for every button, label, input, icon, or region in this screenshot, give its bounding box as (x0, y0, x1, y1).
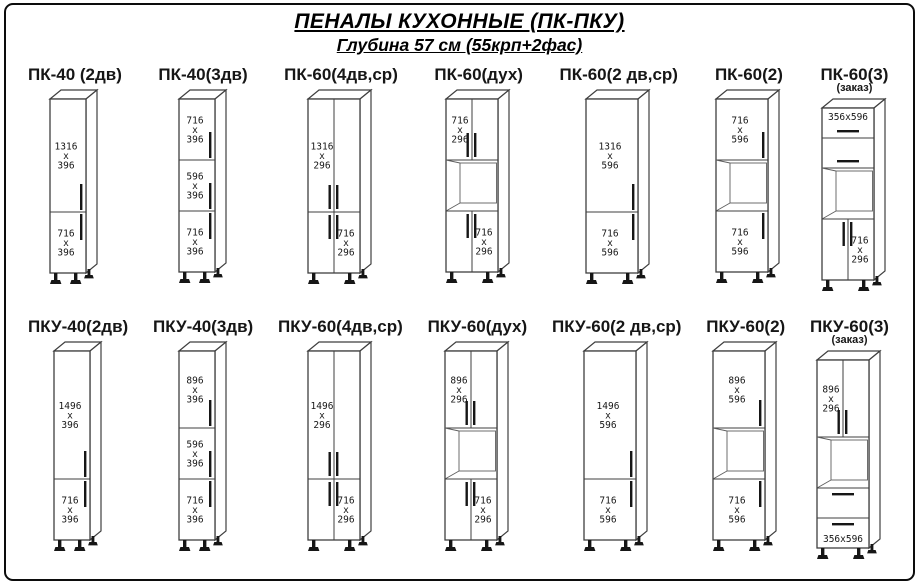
drawer-handle (832, 493, 854, 495)
cabinet-pku-60-4dv-sr: ПКУ-60(4дв,ср) 1496x296716x296 (278, 316, 403, 554)
door-handle (474, 133, 476, 157)
page-title: ПЕНАЛЫ КУХОННЫЕ (ПК-ПКУ) (6, 10, 913, 34)
door-handle (759, 481, 761, 507)
cabinet-art: 1496x396716x396 (52, 340, 105, 554)
cabinet-pku-40-2dv: ПКУ-40(2дв) 1496x396716x396 (28, 316, 128, 554)
cabinet-pku-60-3-zakaz: ПКУ-60(3) (заказ) 896x296356x596 (810, 316, 889, 562)
cabinet-drawing: 1316x396716x396 (48, 88, 101, 287)
door-handle (209, 213, 211, 239)
oven-niche (836, 171, 873, 211)
cabinet-drawing: 1496x396716x396 (52, 340, 105, 554)
cabinet-art: 896x296716x296 (443, 340, 512, 554)
cabinet-side-face (360, 90, 371, 273)
door-handle (336, 185, 338, 209)
door-handle (328, 452, 330, 476)
cabinet-title: ПКУ-40(3дв) (153, 316, 253, 337)
cabinet-side-face (765, 342, 776, 540)
cabinet-drawing: 1316x296716x296 (306, 88, 375, 287)
door-handle (209, 183, 211, 209)
cabinet-foot (199, 540, 210, 551)
cabinet-foot (74, 540, 85, 551)
row-pk-cabinets: ПК-40 (2дв) 1316x396716x396 ПК-40(3дв) 7… (6, 64, 913, 294)
door-handle (473, 401, 475, 425)
door-handle (84, 481, 86, 507)
cabinet-pk-60-duh: ПК-60(дух) 716x296716x296 (434, 64, 523, 286)
cabinet-foot (179, 540, 190, 551)
cabinet-pku-40-3dv: ПКУ-40(3дв) 896x396596x396716x396 (153, 316, 253, 554)
cabinet-foot (752, 272, 763, 283)
cabinet-title: ПКУ-40(2дв) (28, 316, 128, 337)
door-handle (84, 451, 86, 477)
cabinet-pku-60-duh: ПКУ-60(дух) 896x296716x296 (428, 316, 528, 554)
cabinet-foot (622, 273, 633, 284)
cabinet-side-face (874, 99, 885, 280)
door-handle (336, 452, 338, 476)
cabinet-drawing: 716x396596x396716x396 (177, 88, 230, 286)
row-pku-cabinets: ПКУ-40(2дв) 1496x396716x396 ПКУ-40(3дв) … (6, 316, 913, 562)
page-subtitle: Глубина 57 см (55крп+2фас) (6, 35, 913, 55)
drawer-handle (832, 523, 854, 525)
door-handle (630, 481, 632, 507)
cabinet-title: ПК-60(2) (715, 64, 783, 85)
door-handle (80, 214, 82, 240)
cabinet-foot (199, 272, 210, 283)
oven-niche (459, 431, 496, 471)
cabinet-foot (817, 548, 828, 559)
door-handle (80, 184, 82, 210)
cabinet-pk-60-4dv-sr: ПК-60(4дв,ср) 1316x296716x296 (284, 64, 398, 287)
cabinet-title: ПК-60(4дв,ср) (284, 64, 398, 85)
oven-niche (730, 163, 767, 203)
cabinet-drawing: 716x596716x596 (714, 88, 783, 286)
cabinet-side-face (768, 90, 779, 272)
door-handle (329, 185, 331, 209)
cabinet-foot (445, 540, 456, 551)
cabinet-side-face (90, 342, 101, 540)
cabinet-side-face (869, 351, 880, 548)
cabinet-foot (749, 540, 760, 551)
cabinet-title: ПК-40(3дв) (158, 64, 247, 85)
dimension-label: 356x596 (828, 112, 868, 123)
cabinet-drawing: 1496x596716x596 (582, 340, 651, 554)
door-handle (632, 184, 634, 210)
cabinet-art: 716x296716x296 (444, 88, 513, 286)
door-handle (632, 214, 634, 240)
cabinet-drawing: 716x296716x296 (444, 88, 513, 286)
cabinet-foot (858, 280, 869, 291)
cabinet-foot (70, 273, 81, 284)
cabinet-side-face (215, 342, 226, 540)
cabinet-foot (308, 273, 319, 284)
cabinet-side-face (497, 342, 508, 540)
cabinet-art: 1316x396716x396 (48, 88, 101, 287)
door-handle (209, 481, 211, 507)
cabinet-art: 716x396596x396716x396 (177, 88, 230, 286)
cabinet-foot (446, 272, 457, 283)
cabinet-side-face (498, 90, 509, 272)
cabinet-title: ПК-60(2 дв,ср) (559, 64, 677, 85)
cabinet-pk-40-2dv: ПК-40 (2дв) 1316x396716x396 (28, 64, 122, 287)
cabinet-title: ПКУ-60(2 дв,ср) (552, 316, 681, 337)
door-handle (329, 215, 331, 239)
cabinet-art: 896x596716x596 (711, 340, 780, 554)
door-handle (842, 222, 844, 246)
cabinet-drawing: 896x396596x396716x396 (177, 340, 230, 554)
oven-niche (727, 431, 764, 471)
cabinet-pku-60-2dv-sr: ПКУ-60(2 дв,ср) 1496x596716x596 (552, 316, 681, 554)
cabinet-foot (713, 540, 724, 551)
cabinet-title: ПКУ-60(2) (706, 316, 785, 337)
door-handle (467, 214, 469, 238)
cabinet-foot (481, 540, 492, 551)
cabinet-note: (заказ) (836, 83, 872, 94)
cabinet-foot (584, 540, 595, 551)
door-handle (845, 410, 847, 434)
cabinet-side-face (86, 90, 97, 273)
cabinet-side-face (215, 90, 226, 272)
cabinet-foot (344, 273, 355, 284)
cabinet-side-face (636, 342, 647, 540)
cabinet-foot (482, 272, 493, 283)
cabinet-foot (50, 273, 61, 284)
cabinet-art: 896x396596x396716x396 (177, 340, 230, 554)
door-handle (209, 132, 211, 158)
cabinet-art: 356x596716x296 (820, 97, 889, 294)
cabinet-art: 1316x296716x296 (306, 88, 375, 287)
cabinet-pku-60-2: ПКУ-60(2) 896x596716x596 (706, 316, 785, 554)
door-handle (209, 451, 211, 477)
cabinet-art: 716x596716x596 (714, 88, 783, 286)
cabinet-note: (заказ) (832, 335, 868, 346)
cabinet-drawing: 896x296716x296 (443, 340, 512, 554)
cabinet-drawing: 896x596716x596 (711, 340, 780, 554)
cabinet-foot (716, 272, 727, 283)
header: ПЕНАЛЫ КУХОННЫЕ (ПК-ПКУ) Глубина 57 см (… (6, 5, 913, 55)
door-handle (759, 400, 761, 426)
cabinet-pk-60-2dv-sr: ПК-60(2 дв,ср) 1316x596716x596 (559, 64, 677, 287)
cabinet-title: ПК-40 (2дв) (28, 64, 122, 85)
cabinet-foot (620, 540, 631, 551)
cabinet-foot (853, 548, 864, 559)
cabinet-drawing: 1316x596716x596 (584, 88, 653, 287)
oven-niche (831, 440, 868, 480)
cabinet-foot (822, 280, 833, 291)
drawer-handle (837, 130, 859, 132)
diagram-frame: ПЕНАЛЫ КУХОННЫЕ (ПК-ПКУ) Глубина 57 см (… (4, 3, 915, 581)
cabinet-pk-60-2: ПК-60(2) 716x596716x596 (714, 64, 783, 286)
cabinet-pk-40-3dv: ПК-40(3дв) 716x396596x396716x396 (158, 64, 247, 286)
cabinet-foot (344, 540, 355, 551)
door-handle (630, 451, 632, 477)
cabinet-foot (54, 540, 65, 551)
door-handle (762, 213, 764, 239)
door-handle (328, 482, 330, 506)
cabinet-title: ПКУ-60(дух) (428, 316, 528, 337)
cabinet-foot (179, 272, 190, 283)
cabinet-title: ПК-60(дух) (434, 64, 523, 85)
cabinet-art: 1496x596716x596 (582, 340, 651, 554)
cabinet-drawing: 356x596716x296 (820, 97, 889, 294)
cabinet-side-face (360, 342, 371, 540)
door-handle (762, 132, 764, 158)
cabinet-pk-60-3-zakaz: ПК-60(3) (заказ) 356x596716x296 (820, 64, 889, 294)
cabinet-art: 896x296356x596 (815, 349, 884, 562)
cabinet-side-face (638, 90, 649, 273)
cabinet-art: 1496x296716x296 (306, 340, 375, 554)
cabinet-title: ПКУ-60(4дв,ср) (278, 316, 403, 337)
door-handle (209, 400, 211, 426)
oven-niche (460, 163, 497, 203)
door-handle (465, 482, 467, 506)
drawer-handle (837, 160, 859, 162)
cabinet-drawing: 896x296356x596 (815, 349, 884, 562)
cabinet-foot (586, 273, 597, 284)
dimension-label: 356x596 (823, 534, 863, 545)
cabinet-art: 1316x596716x596 (584, 88, 653, 287)
cabinet-foot (308, 540, 319, 551)
cabinet-drawing: 1496x296716x296 (306, 340, 375, 554)
